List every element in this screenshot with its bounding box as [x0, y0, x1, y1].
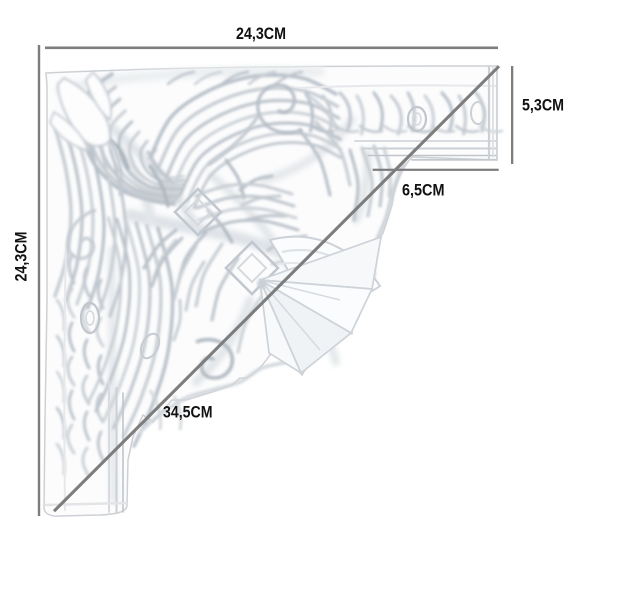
- svg-text:24,3CM: 24,3CM: [13, 232, 31, 282]
- svg-text:24,3CM: 24,3CM: [236, 25, 286, 43]
- svg-text:6,5CM: 6,5CM: [402, 182, 445, 200]
- svg-text:34,5CM: 34,5CM: [163, 404, 213, 422]
- svg-text:5,3CM: 5,3CM: [522, 97, 564, 115]
